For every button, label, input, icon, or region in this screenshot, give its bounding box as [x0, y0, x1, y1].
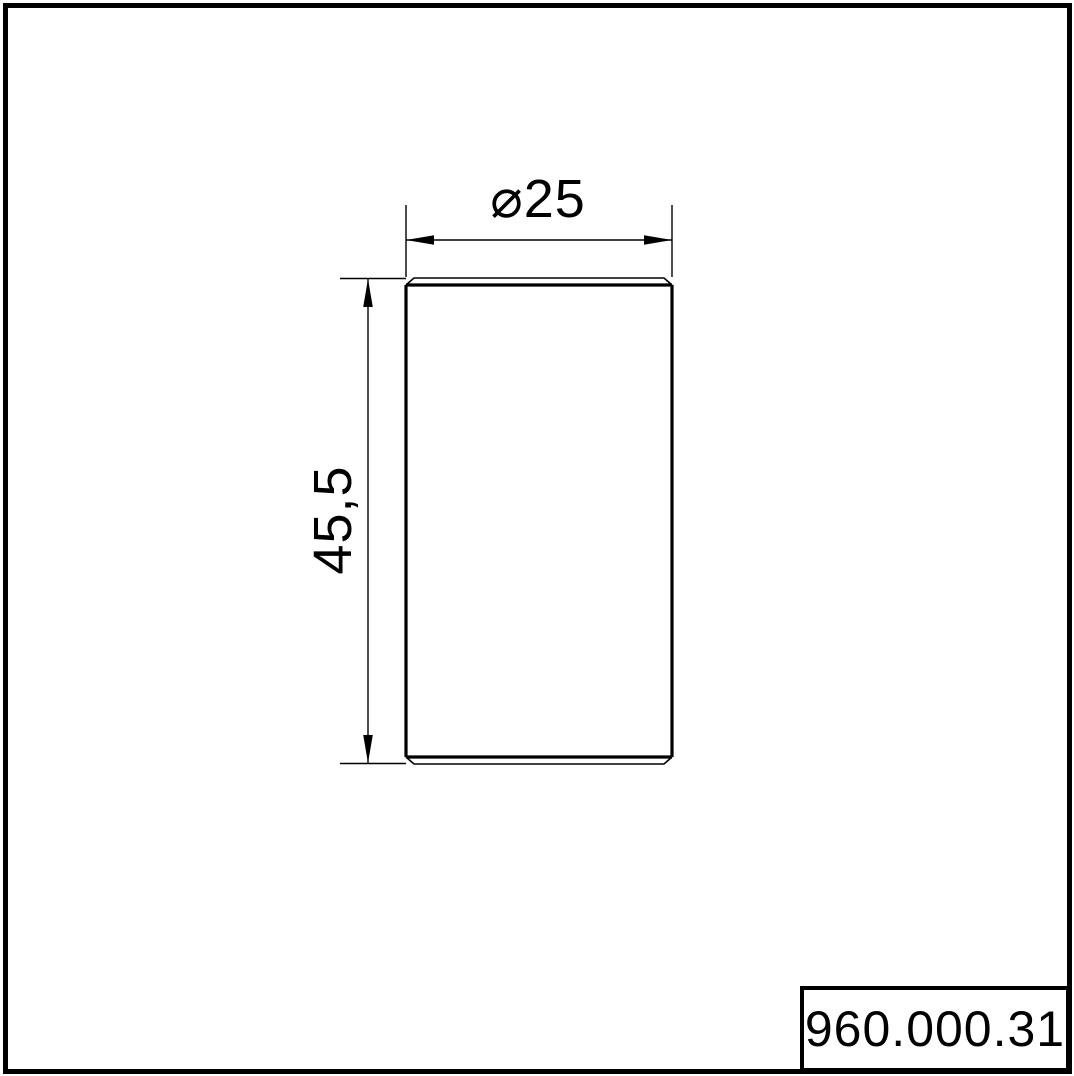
diameter-arrowhead-right: [644, 235, 672, 245]
height-dimension-label: 45,5: [306, 420, 360, 620]
height-arrowhead-top: [363, 279, 373, 307]
diameter-dimension-label: ⌀25: [438, 172, 638, 226]
drawing-sheet: ⌀25 45,5 960.000.31: [0, 0, 1074, 1076]
drawing-geometry: [0, 0, 1074, 1076]
part-front-view: [406, 278, 672, 764]
height-arrowhead-bottom: [363, 735, 373, 763]
title-block: 960.000.31: [800, 986, 1070, 1072]
part-outline: [406, 285, 672, 757]
diameter-arrowhead-left: [406, 235, 434, 245]
part-number-text: 960.000.31: [805, 1004, 1065, 1054]
